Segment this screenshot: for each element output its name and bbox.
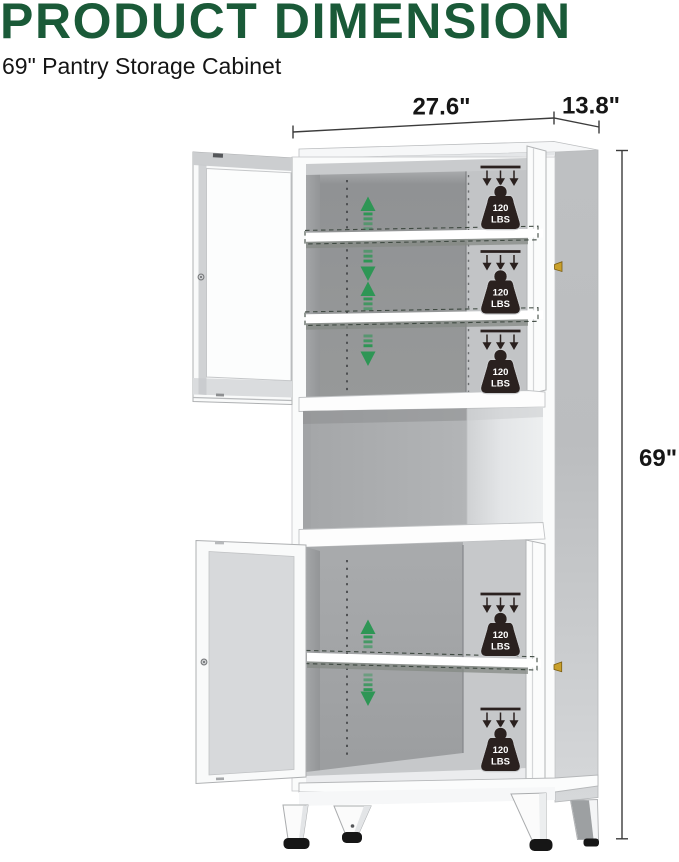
svg-text:120: 120 [493, 630, 509, 641]
svg-text:27.6": 27.6" [412, 94, 470, 121]
svg-text:120: 120 [493, 367, 509, 378]
svg-text:120: 120 [493, 288, 509, 299]
svg-text:69": 69" [639, 445, 677, 472]
svg-text:120: 120 [493, 203, 509, 214]
svg-text:LBS: LBS [491, 379, 510, 390]
svg-text:120: 120 [493, 745, 509, 756]
svg-text:LBS: LBS [491, 642, 510, 653]
svg-text:LBS: LBS [491, 299, 510, 310]
svg-text:13.8": 13.8" [562, 93, 620, 120]
svg-text:LBS: LBS [491, 757, 510, 768]
svg-text:LBS: LBS [491, 215, 510, 226]
